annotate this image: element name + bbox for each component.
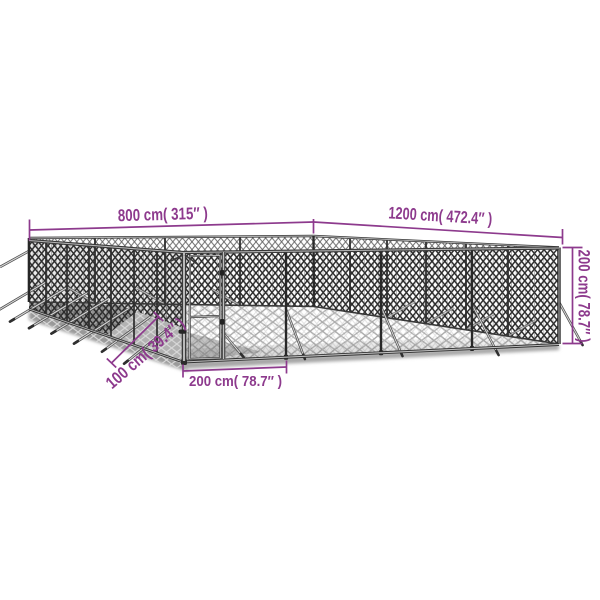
svg-text:200 cm( 78.7″ ): 200 cm( 78.7″ ): [189, 374, 282, 390]
svg-text:800 cm( 315″ ): 800 cm( 315″ ): [118, 204, 208, 226]
svg-text:200 cm( 78.7″ ): 200 cm( 78.7″ ): [575, 250, 594, 343]
